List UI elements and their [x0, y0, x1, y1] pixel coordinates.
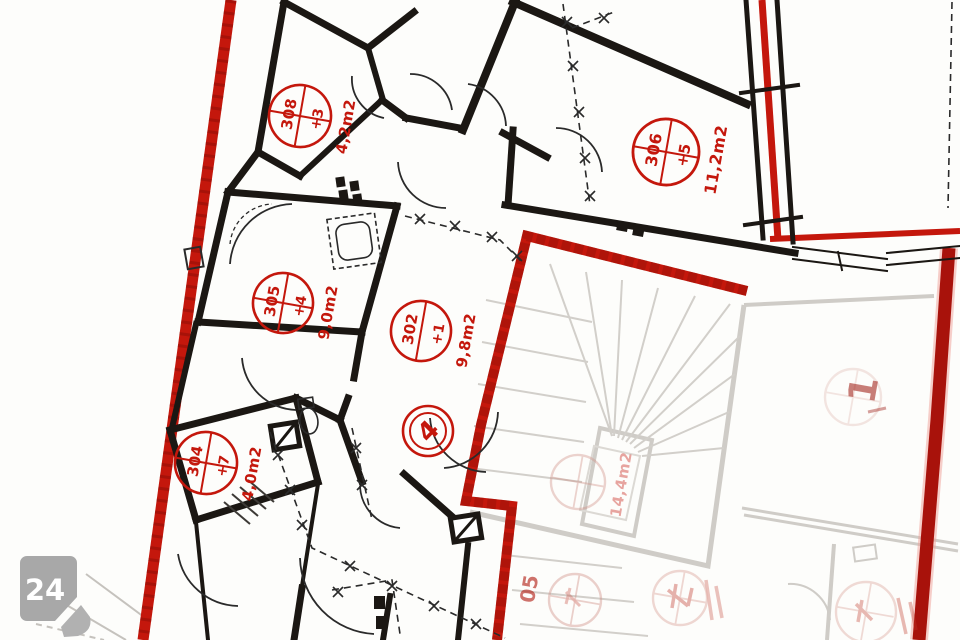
- faint-stamp-bottom-mid: [649, 567, 722, 630]
- room-sub: +5: [673, 142, 695, 168]
- faint-stamp-bottom-right: [831, 577, 916, 640]
- walls-layer: [170, 0, 960, 640]
- faint-area: 14,4m2: [607, 450, 636, 518]
- door-arcs: [178, 74, 602, 634]
- shower-tray: [230, 204, 292, 264]
- doors-fixtures-layer: [178, 2, 952, 638]
- page-badge: 24: [20, 556, 91, 637]
- faint-stamp-bottom-left: 05: [515, 570, 605, 630]
- room-stamp-306: 306 +5 11,2m2: [628, 111, 732, 196]
- faint-mark: 05: [515, 573, 543, 605]
- floor-plan-drawing: 308 +3 4,2m2 306 +5 11,2m2 305 +4 9,0m2 …: [0, 0, 960, 640]
- badge-number: 24: [25, 573, 65, 607]
- room-stamp-302: 302 +1 9,8m2: [386, 296, 480, 370]
- sink: [327, 213, 381, 269]
- room-sub: +7: [214, 454, 233, 478]
- faint-stamp-right: 1: [821, 365, 888, 430]
- room-area: 4,0m2: [238, 445, 265, 502]
- boundary-right-band: [919, 248, 949, 640]
- room-area: 9,8m2: [452, 312, 479, 369]
- door-stamp-4: 4: [393, 396, 464, 467]
- room-sub: +4: [291, 294, 311, 318]
- room-sub: +3: [308, 107, 327, 131]
- room-number: 306: [641, 132, 666, 168]
- boundary-party-wall: [762, 0, 778, 240]
- faint-mark: 1: [839, 373, 887, 407]
- room-stamp-308: 308 +3 4,2m2: [264, 80, 360, 156]
- room-area: 11,2m2: [700, 123, 731, 196]
- room-sub: +1: [429, 322, 448, 346]
- room-stamp-305: 305 +4 9,0m2: [248, 268, 342, 342]
- floor-plan-scan: 308 +3 4,2m2 306 +5 11,2m2 305 +4 9,0m2 …: [0, 0, 960, 640]
